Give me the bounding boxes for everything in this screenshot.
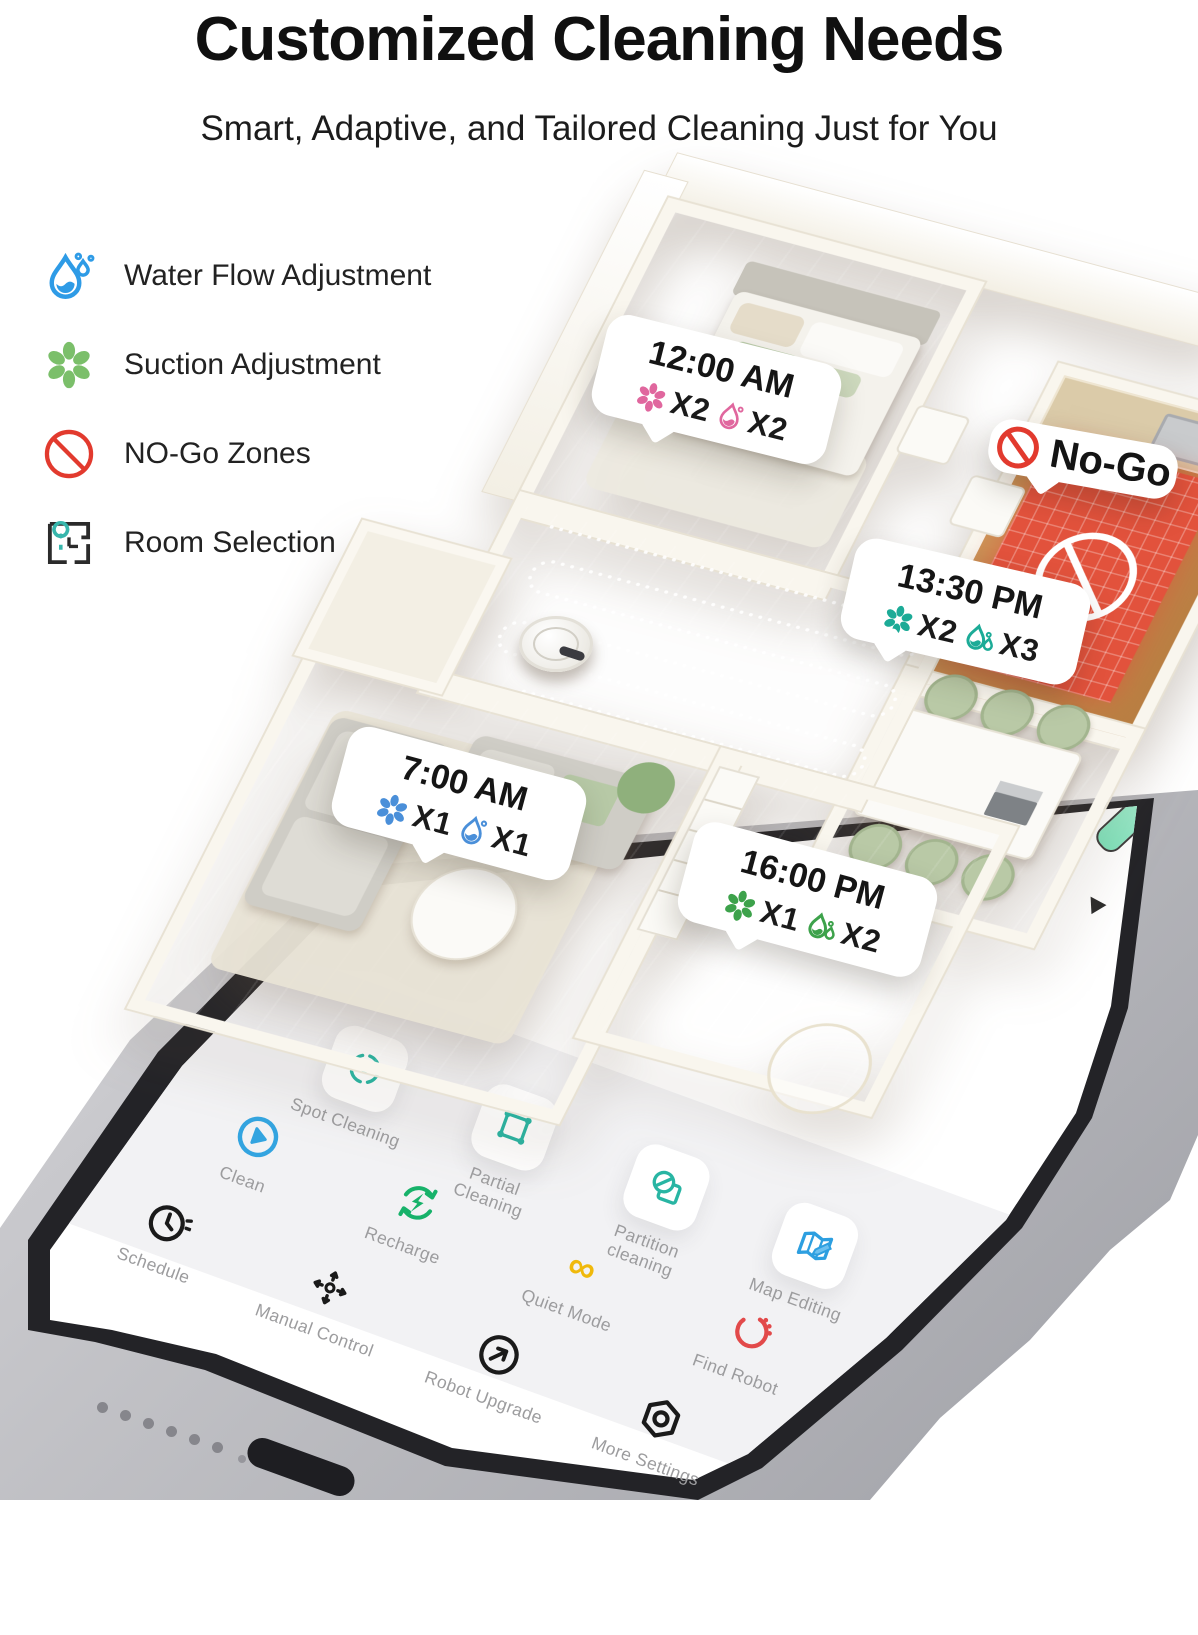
water-count: X2	[744, 404, 791, 449]
suction-fan-icon	[40, 336, 98, 394]
water-drop-icon	[799, 905, 843, 949]
feature-legend: Water Flow Adjustment Suction Adjustment…	[40, 246, 431, 602]
legend-label: NO-Go Zones	[124, 437, 311, 471]
find-robot-icon	[722, 1302, 781, 1361]
robot-vacuum	[519, 616, 593, 672]
suction-count: X1	[756, 894, 804, 939]
frame-screw	[238, 1455, 246, 1463]
hanging-lamp	[750, 1012, 889, 1125]
water-drop-icon	[957, 617, 1000, 660]
more-settings-icon	[632, 1389, 691, 1448]
legend-label: Water Flow Adjustment	[124, 259, 431, 293]
legend-item-room-selection: Room Selection	[40, 513, 431, 573]
no-entry-icon	[40, 425, 98, 483]
speaker-hole	[97, 1402, 108, 1413]
header: Customized Cleaning Needs Smart, Adaptiv…	[0, 0, 1198, 149]
suction-count: X2	[667, 385, 714, 430]
speaker-hole	[120, 1410, 131, 1421]
robot-upgrade-icon	[470, 1325, 529, 1384]
legend-item-suction: Suction Adjustment	[40, 335, 431, 395]
partition-cleaning-icon	[641, 1162, 692, 1213]
speaker-hole	[143, 1418, 154, 1429]
speaker-hole	[212, 1442, 223, 1453]
suction-fan-icon	[370, 788, 414, 832]
floorplan-pin-icon	[40, 514, 98, 572]
legend-label: Room Selection	[124, 526, 336, 560]
map-editing-icon	[789, 1220, 840, 1271]
quiet-mode-icon: ∞	[563, 1245, 601, 1290]
water-count: X1	[488, 819, 536, 864]
manual-control-icon	[301, 1258, 360, 1317]
legend-item-water-flow: Water Flow Adjustment	[40, 246, 431, 306]
legend-item-no-go: NO-Go Zones	[40, 424, 431, 484]
legend-label: Suction Adjustment	[124, 348, 381, 382]
water-drop-icon	[40, 247, 98, 305]
page-subtitle: Smart, Adaptive, and Tailored Cleaning J…	[0, 109, 1198, 149]
water-count: X3	[996, 626, 1043, 670]
clean-play-icon	[229, 1107, 288, 1166]
water-count: X2	[837, 916, 885, 961]
speaker-hole	[189, 1434, 200, 1445]
page-title: Customized Cleaning Needs	[0, 4, 1198, 75]
speaker-hole	[166, 1426, 177, 1437]
recharge-icon	[389, 1173, 448, 1232]
map-arrow-fragment	[1084, 897, 1107, 919]
water-drop-icon	[451, 811, 493, 853]
schedule-clock-icon	[140, 1193, 199, 1252]
water-drop-icon	[710, 398, 749, 437]
suction-count: X2	[914, 607, 961, 651]
